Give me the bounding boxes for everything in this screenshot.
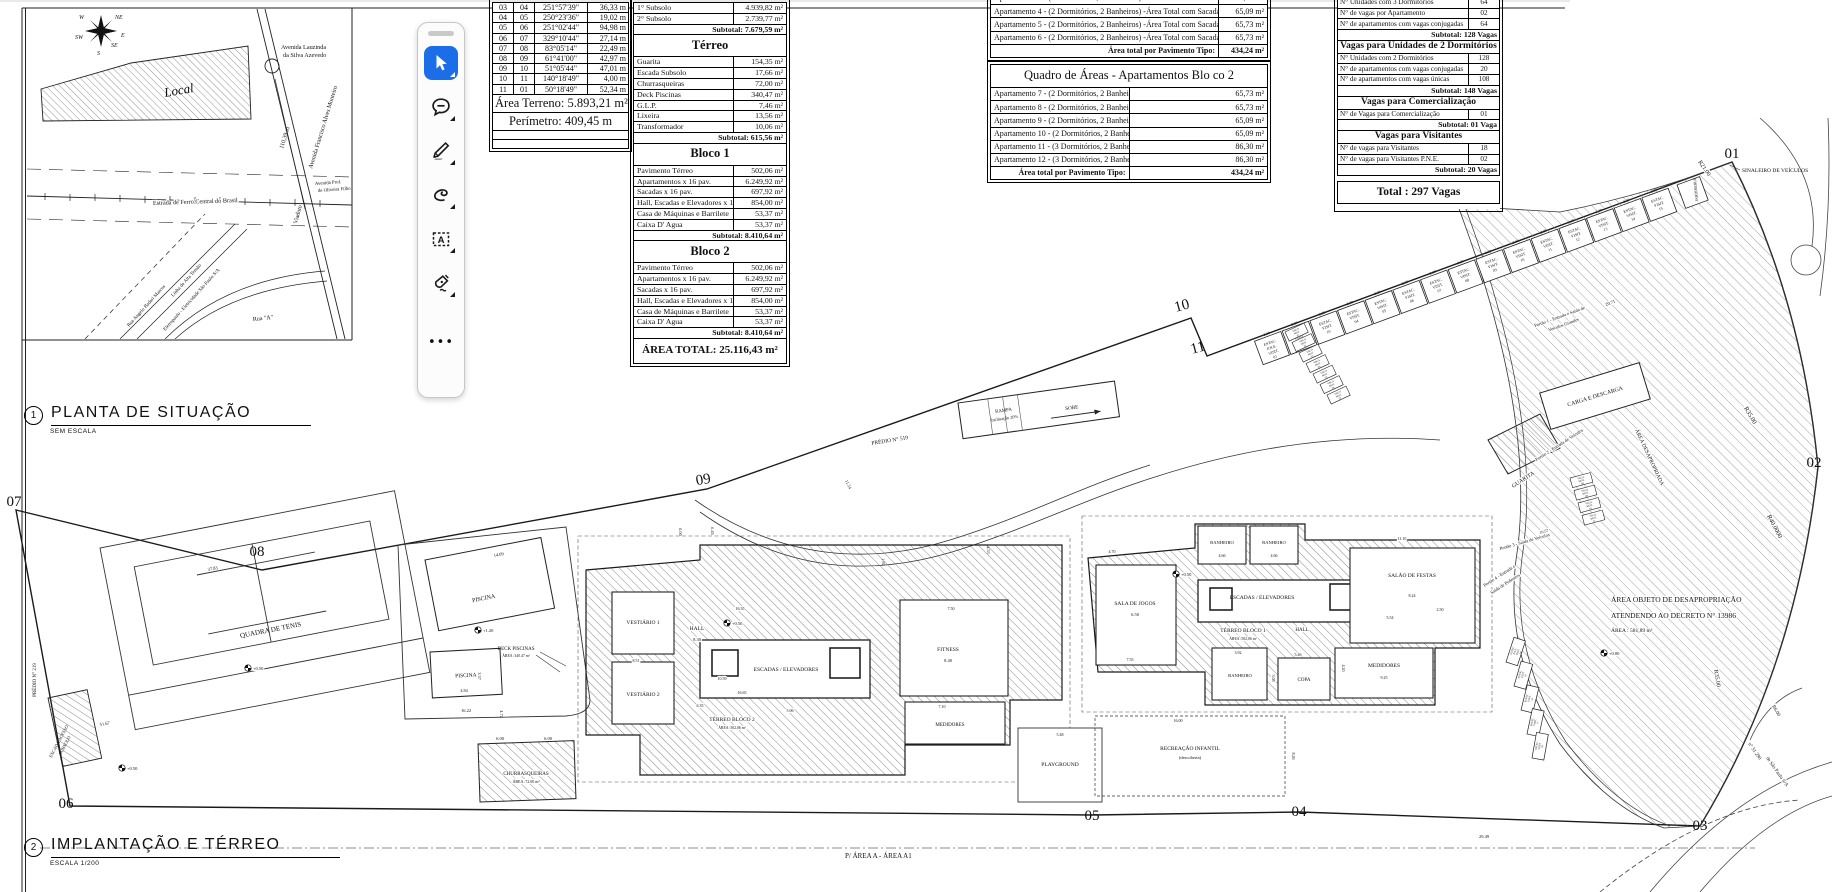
vagas-row: N° de apartamentos com vagas únicas108	[1338, 75, 1500, 86]
svg-text:BANHEIRO: BANHEIRO	[1228, 673, 1252, 678]
svg-text:6.50: 6.50	[1131, 612, 1140, 617]
quadro-row: Apartamento 4 - (2 Dormitórios, 2 Banhei…	[991, 5, 1268, 18]
areas-row: Hall, Escadas e Elevadores x 16 pav.854,…	[634, 295, 787, 306]
svg-text:VISIT.: VISIT.	[1521, 671, 1526, 679]
svg-text:VISIT.: VISIT.	[1653, 201, 1664, 208]
survey-row: 0405250°23'36"19,02 m	[493, 13, 629, 23]
svg-text:02: 02	[1303, 344, 1307, 348]
areas-row: Escada Subsolo17,66 m²	[634, 68, 787, 79]
quadro-row: Apartamento 5 - (2 Dormitórios, 2 Banhei…	[991, 18, 1268, 31]
svg-text:10: 10	[1589, 507, 1593, 511]
svg-text:R6.00: R6.00	[1770, 705, 1781, 718]
svg-text:20.71: 20.71	[1605, 299, 1616, 307]
svg-text:ESCADA ACESSO: ESCADA ACESSO	[48, 724, 70, 759]
svg-text:2.30: 2.30	[1374, 290, 1382, 296]
situation-scale-note: SEM ESCALA	[50, 428, 97, 435]
survey-row: 1011140°18'49"4,00 m	[493, 74, 629, 84]
parking-stall: ESTAC.VISIT.17	[1527, 709, 1544, 737]
level-marker: +0.00	[1601, 650, 1620, 656]
svg-text:3.08: 3.08	[1271, 675, 1276, 682]
areas-row: Subtotal: 615,56 m²	[634, 132, 787, 143]
areas-row: Pavimento Térreo502,06 m²	[634, 263, 787, 274]
svg-text:17: 17	[1536, 721, 1540, 725]
survey-row: 0506251°02'44"94,98 m	[493, 23, 629, 33]
svg-text:Veículos Grandes: Veículos Grandes	[1547, 317, 1579, 333]
svg-text:4.66: 4.66	[1219, 553, 1226, 558]
svg-text:Portão 3 - Saída de Veículos: Portão 3 - Saída de Veículos	[1499, 532, 1550, 551]
svg-text:1.92: 1.92	[881, 558, 887, 566]
vagas-row: N° de vagas para Visitantes18	[1338, 143, 1500, 154]
quadro-row: Apartamento 11 - (3 Dormitórios, 2 Banhe…	[991, 140, 1268, 153]
svg-text:5.46: 5.46	[1295, 652, 1302, 657]
svg-text:RECREAÇÃO INFANTIL: RECREAÇÃO INFANTIL	[1160, 744, 1220, 752]
road-arcs	[1600, 118, 1832, 892]
areas-row: Casa de Máquinas e Barrilete53,37 m²	[634, 208, 787, 219]
cursor-icon	[430, 52, 452, 74]
svg-text:SE: SE	[111, 43, 118, 49]
parking-stall: 2.30ESTAC.VISIT.11	[1530, 225, 1566, 262]
svg-text:16.00: 16.00	[1174, 718, 1183, 723]
svg-text:BANHEIRO: BANHEIRO	[1262, 540, 1286, 545]
vertex-number: 11	[1189, 339, 1207, 358]
svg-text:16.65: 16.65	[738, 690, 747, 695]
svg-text:R21.00: R21.00	[1696, 160, 1711, 178]
quadro-row: Apartamento 12 - (3 Dormitórios, 2 Banhe…	[991, 153, 1268, 166]
survey-row: 070883°05'14"22,49 m	[493, 43, 629, 53]
vertex-number: 09	[695, 471, 713, 489]
svg-text:CHURRASQUEIRAS: CHURRASQUEIRAS	[503, 772, 549, 777]
svg-text:05: 05	[1382, 309, 1387, 314]
vagas-row: Subtotal: 148 Vagas	[1338, 85, 1500, 96]
level-markers: +0.50+0.50+0.50+0.50+1.20+0.00	[119, 571, 1620, 771]
parking-stall: 2.30ESTAC.VISIT.09	[1474, 245, 1510, 282]
predio-219-label: PRÉDIO N° 219	[32, 663, 38, 697]
svg-text:16.22: 16.22	[461, 708, 471, 713]
svg-text:2.30: 2.30	[1318, 310, 1326, 316]
svg-text:07: 07	[1437, 288, 1442, 293]
deck-label: DECK PISCINAS	[497, 647, 534, 652]
svg-text:VISIT.: VISIT.	[1487, 262, 1498, 269]
svg-text:da Silva Azevedo: da Silva Azevedo	[283, 52, 326, 59]
medidores-b2-label: MEDIDORES	[935, 723, 964, 728]
vagas-row: N° de vagas para Visitantes P.N.E.02	[1338, 154, 1500, 165]
areas-row: G.L.P.7,46 m²	[634, 100, 787, 111]
svg-text:VISIT.: VISIT.	[1349, 313, 1360, 320]
svg-text:01: 01	[1273, 354, 1278, 359]
signature-pen-icon	[430, 272, 452, 294]
svg-text:2.30: 2.30	[1291, 321, 1299, 327]
level-marker: +0.50	[724, 620, 743, 626]
parking-stall: 2.30ESTAC.VISIT.12	[1557, 215, 1593, 252]
svg-text:Avenida Prof.: Avenida Prof.	[315, 180, 342, 187]
svg-text:R35.00: R35.00	[1712, 669, 1721, 687]
svg-text:n° 51.290: n° 51.290	[1746, 742, 1762, 761]
survey-table: 0304251°57'39"36,33 m 0405250°23'36"19,0…	[492, 2, 629, 149]
svg-text:P.N.E.: P.N.E.	[1513, 647, 1518, 654]
areas-row: Churrasqueiras72,00 m²	[634, 78, 787, 89]
vagas-row: N° Unidades com 3 Dormitórios64	[1338, 0, 1500, 8]
svg-text:ESTAC.: ESTAC.	[1518, 669, 1523, 678]
parking-stall: 2.30ESTAC.VISIT.13	[1585, 204, 1621, 241]
areas-row: Lixeira13,56 m²	[634, 111, 787, 122]
implantacao-scale-note: ESCALA 1/200	[50, 860, 99, 867]
parking-stall: ESTAC.P.N.E.VISIT.20	[1506, 637, 1526, 666]
svg-text:4.84: 4.84	[460, 688, 468, 693]
svg-text:ESTAC.: ESTAC.	[1402, 288, 1416, 296]
svg-text:+0.50: +0.50	[253, 666, 264, 671]
quadro-row: Apartamento 10 - (2 Dormitórios, 2 Banhe…	[991, 127, 1268, 140]
svg-text:8.30: 8.30	[693, 637, 702, 642]
svg-text:Saída de Pedestres: Saída de Pedestres	[1489, 572, 1521, 595]
svg-text:VISIT.: VISIT.	[1538, 742, 1542, 750]
salao-festas-label: SALÃO DE FESTAS	[1388, 571, 1436, 579]
svg-text:VISIT.: VISIT.	[1268, 349, 1279, 356]
draw-tool-button[interactable]	[424, 134, 458, 168]
parking-stall: 2.30ESTAC.VISIT.04	[1336, 297, 1372, 334]
areas-row: Subtotal: 8.410,64 m²	[634, 328, 787, 339]
svg-text:VAGA: VAGA	[1327, 380, 1335, 386]
more-icon: •••	[428, 338, 454, 348]
svg-text:07: 07	[1338, 396, 1342, 400]
area-note: P/ ÁREA A - ÁREA A1	[845, 852, 912, 860]
svg-text:7.50: 7.50	[948, 606, 955, 611]
svg-text:PLAYGROUND: PLAYGROUND	[1041, 762, 1078, 768]
svg-text:MOT.: MOT.	[1582, 491, 1589, 496]
svg-text:ESTAC.: ESTAC.	[1524, 693, 1529, 702]
svg-text:VAGA: VAGA	[1581, 488, 1589, 493]
svg-text:8.26: 8.26	[1291, 753, 1296, 760]
implantacao-title: IMPLANTAÇÃO E TÉRREO	[51, 836, 340, 858]
svg-text:Estrada de Ferro Central do Br: Estrada de Ferro Central do Brasil	[153, 197, 238, 207]
curve-parking-column: ESTAC.P.N.E.VISIT.20ESTAC.VISIT.19ESTAC.…	[1506, 637, 1548, 760]
svg-text:15: 15	[1658, 206, 1663, 211]
svg-text:14: 14	[1631, 217, 1636, 222]
parking-stall: ESTAC.VISIT.16	[1532, 732, 1548, 760]
vestiario1-label: VESTIÁRIO 1	[626, 618, 659, 626]
boundary-vertices: 0102030405060708091011	[7, 146, 1822, 834]
section-number-badge: 1	[24, 406, 43, 425]
vagas-row: N° de Vagas para Comercialização01	[1338, 109, 1500, 120]
svg-text:R40.0000: R40.0000	[1765, 514, 1783, 540]
svg-text:VISIT.: VISIT.	[1377, 303, 1388, 310]
vestiario2-label: VESTIÁRIO 2	[626, 690, 659, 698]
vertex-number: 03	[1693, 818, 1708, 834]
svg-text:16: 16	[1541, 744, 1545, 748]
situation-map: W NE SW E S SE Local Aven	[25, 9, 352, 339]
svg-text:2.30: 2.30	[1346, 300, 1354, 306]
svg-text:06: 06	[1409, 299, 1414, 304]
svg-text:2.30: 2.30	[1623, 198, 1631, 204]
svg-text:VAGA: VAGA	[1299, 338, 1307, 344]
sala-jogos-label: SALA DE JOGOS	[1114, 601, 1155, 607]
svg-text:VISIT.: VISIT.	[1527, 695, 1532, 703]
quadro-row: Apartamento 8 - (2 Dormitórios, 2 Banhei…	[991, 101, 1268, 114]
svg-text:ESTAC.: ESTAC.	[1623, 206, 1637, 214]
svg-text:VISIT.: VISIT.	[1543, 242, 1554, 249]
svg-text:+0.50: +0.50	[732, 621, 743, 626]
svg-text:VAGA: VAGA	[1589, 513, 1597, 518]
moto-stall: VAGAMOT.06	[1320, 376, 1343, 394]
svg-text:VISIT.: VISIT.	[1570, 231, 1581, 238]
areas-row: Bloco 1	[634, 143, 787, 165]
moto-parking-a: VAGAMOT.01VAGAMOT.02VAGAMOT.03VAGAMOT.04…	[1285, 323, 1350, 404]
svg-text:VISIT.: VISIT.	[1432, 282, 1443, 289]
svg-text:VISIT.: VISIT.	[1626, 211, 1637, 218]
comment-tool-button[interactable]	[424, 90, 458, 124]
submenu-corner-icon	[450, 160, 455, 165]
parking-stall: 2.30ESTAC.VISIT.03	[1308, 307, 1344, 344]
areas-table: 1° Subsolo4.939,82 m² 2° Subsolo2.739,77…	[633, 2, 787, 364]
svg-text:MOT.: MOT.	[1586, 504, 1593, 509]
svg-text:6.00: 6.00	[544, 736, 553, 741]
svg-text:(descoberta): (descoberta)	[1179, 755, 1202, 760]
areas-row: Caixa D' Agua53,37 m²	[634, 219, 787, 230]
select-tool-button[interactable]	[424, 46, 458, 80]
moto-stall: VAGAMOT.04	[1306, 355, 1329, 373]
areas-row: 1° Subsolo4.939,82 m²	[634, 3, 787, 14]
svg-text:ATENDENDO AO DECRETO N° 13986: ATENDENDO AO DECRETO N° 13986	[1611, 611, 1736, 620]
svg-text:ESTAC.: ESTAC.	[1263, 339, 1277, 347]
situation-title-block: 1 PLANTA DE SITUAÇÃO	[24, 404, 311, 426]
moto-stall: VAGAMOT.01	[1285, 323, 1308, 341]
svg-text:MOT.: MOT.	[1329, 383, 1336, 388]
areas-row: Sacadas x 16 pav.697,92 m²	[634, 187, 787, 198]
bloco2-building: VESTIÁRIO 1 VESTIÁRIO 2 HALL 8.30 ESCADA…	[578, 536, 1070, 782]
svg-text:2.30: 2.30	[1484, 249, 1492, 255]
vagas-row: Vagas para Comercialização	[1338, 96, 1500, 109]
svg-text:Portão 1 - Entrada e Saída de: Portão 1 - Entrada e Saída de	[1533, 305, 1585, 328]
signature-tool-button[interactable]	[424, 266, 458, 300]
svg-text:06: 06	[1331, 386, 1335, 390]
expropriation-labels: ÁREA OBJETO DE DESAPROPRIAÇÃO ATENDENDO …	[1611, 160, 1789, 789]
svg-text:11.10: 11.10	[1398, 536, 1407, 541]
svg-text:Viaduto: Viaduto	[293, 205, 304, 225]
lasso-tool-button[interactable]	[424, 178, 458, 212]
level-marker: +1.20	[475, 627, 494, 633]
svg-text:3.92: 3.92	[1235, 650, 1242, 655]
vertex-number: 10	[1173, 296, 1192, 315]
quadro-row: Apartamento 9 - (2 Dormitórios, 2 Banhei…	[991, 114, 1268, 127]
parking-stall: 2.30ESTAC.VISIT.02	[1281, 317, 1317, 354]
svg-text:ÁREA : 581,89 m²: ÁREA : 581,89 m²	[1611, 626, 1653, 634]
fitness-label: FITNESS	[937, 647, 959, 653]
svg-text:7.10: 7.10	[939, 704, 946, 709]
svg-text:ESTAC.: ESTAC.	[1319, 318, 1333, 326]
svg-text:03: 03	[1310, 354, 1314, 358]
svg-text:ÁREA DESAPROPRIADA: ÁREA DESAPROPRIADA	[1633, 427, 1666, 486]
svg-text:VAGA: VAGA	[1585, 501, 1593, 506]
toolbar-drag-handle[interactable]	[428, 31, 454, 36]
svg-text:16.35: 16.35	[736, 606, 745, 611]
parking-stall: 2.30ESTAC.VISIT.06	[1391, 276, 1427, 313]
svg-text:ESTAC.: ESTAC.	[1540, 236, 1554, 244]
survey-row: 080961°41'00"42,97 m	[493, 54, 629, 64]
svg-text:110,39 m: 110,39 m	[279, 126, 291, 150]
implantacao-title-block: 2 IMPLANTAÇÃO E TÉRREO	[24, 836, 340, 858]
section-number-badge: 2	[24, 838, 43, 857]
survey-row: 0304251°57'39"36,33 m	[493, 3, 629, 13]
svg-text:6.00: 6.00	[678, 528, 683, 536]
svg-text:10.57: 10.57	[1539, 528, 1549, 535]
vagas-row: N° de vagas por Apartamento02	[1338, 8, 1500, 19]
areas-row: Caixa D' Agua53,37 m²	[634, 317, 787, 328]
vagas-row: Total : 297 Vagas	[1338, 181, 1500, 203]
svg-text:2.30: 2.30	[1567, 218, 1575, 224]
vagas-row: N° de apartamentos com vagas conjugadas6…	[1338, 19, 1500, 30]
svg-text:Inclinação 20%: Inclinação 20%	[991, 414, 1019, 423]
svg-text:ÁREA OBJETO DE DESAPROPRIAÇÃO: ÁREA OBJETO DE DESAPROPRIAÇÃO	[1611, 594, 1742, 604]
vertex-number: 02	[1807, 455, 1822, 471]
submenu-corner-icon	[450, 72, 455, 77]
sinaleiro-label: SINALEIRO DE VEÍCULOS	[1742, 166, 1808, 174]
svg-text:Linha de Alta Tensão: Linha de Alta Tensão	[171, 263, 203, 298]
level-marker: +0.50	[119, 765, 138, 771]
quadro-row: Apartamento 6 - (2 Dormitórios, 2 Banhei…	[991, 31, 1268, 44]
submenu-corner-icon	[450, 204, 455, 209]
jardineira-strip: JARDINEIRA	[1677, 176, 1708, 209]
svg-text:Eletropaulo - Eletricidade São: Eletropaulo - Eletricidade São Paulo S/A	[163, 268, 222, 333]
parking-stall: 2.30ESTAC.P.N.E.VISIT.01	[1253, 327, 1289, 364]
svg-text:51.67: 51.67	[99, 720, 111, 727]
svg-text:ÁREA :72.00 m²: ÁREA :72.00 m²	[512, 779, 540, 784]
quadro-areas-bloco2-table: Quadro de Áreas - Apartamentos Blo co 2 …	[990, 64, 1268, 180]
svg-text:8.40: 8.40	[944, 658, 953, 663]
predio-519-label: PRÉDIO N° 519	[871, 433, 909, 447]
svg-text:VISIT.: VISIT.	[1321, 323, 1332, 330]
quadro-row: Apartamento 7 - (2 Dormitórios, 2 Banhei…	[991, 88, 1268, 101]
escadas-b1-label: ESCADAS / ELEVADORES	[1230, 595, 1295, 601]
survey-row: 110150°18'49"52,34 m	[493, 84, 629, 94]
svg-text:VISIT.: VISIT.	[1598, 221, 1609, 228]
areas-row: Deck Piscinas340,47 m²	[634, 89, 787, 100]
moto-stall: VAGAMOT.07	[1327, 386, 1350, 404]
svg-text:MOT.: MOT.	[1590, 516, 1597, 521]
guarita-label: GUARITA	[1511, 470, 1536, 489]
svg-text:20: 20	[1519, 651, 1523, 655]
svg-text:SOBE: SOBE	[1065, 404, 1079, 412]
parking-stall: ESTAC.VISIT.18	[1521, 685, 1539, 713]
svg-text:HALL: HALL	[1295, 628, 1308, 633]
svg-text:VAGA: VAGA	[1577, 476, 1585, 481]
svg-text:2.30: 2.30	[1512, 239, 1520, 245]
level-marker: +0.50	[245, 665, 264, 671]
svg-text:ESTAC.: ESTAC.	[1512, 247, 1526, 255]
areas-row: Transformador10,06 m²	[634, 122, 787, 133]
moto-stall: VAGAMOT.05	[1313, 365, 1336, 383]
svg-text:9.25: 9.25	[1381, 675, 1388, 680]
svg-text:RAMPA: RAMPA	[995, 408, 1013, 415]
areas-row: Casa de Máquinas e Barrilete53,37 m²	[634, 306, 787, 317]
area-terreno-row: Área Terreno: 5.893,21 m²	[493, 94, 629, 112]
parking-stall: 2.30ESTAC.VISIT.14	[1613, 194, 1649, 231]
banheiro-label: BANHEIRO	[1210, 540, 1234, 545]
svg-text:ESTAC.: ESTAC.	[1485, 257, 1499, 265]
svg-text:5.06: 5.06	[787, 708, 794, 713]
expropriation-area	[1458, 162, 1818, 828]
svg-text:ESTAC.: ESTAC.	[1535, 741, 1540, 750]
vertex-number: 04	[1292, 804, 1308, 820]
areas-row: Subtotal: 8.410,64 m²	[634, 230, 787, 241]
svg-text:MOT.: MOT.	[1308, 351, 1315, 356]
vertex-number: 07	[7, 494, 23, 510]
svg-text:4.72: 4.72	[499, 710, 504, 717]
svg-text:HALL: HALL	[690, 626, 705, 632]
svg-text:2.30: 2.30	[1595, 208, 1603, 214]
vagas-row: Subtotal: 128 Vagas	[1338, 30, 1500, 41]
more-tools-button[interactable]: •••	[424, 326, 458, 360]
svg-text:08: 08	[1581, 482, 1585, 486]
quadro-row: Área total por Pavimento Tipo:434,24 m²	[991, 167, 1268, 180]
areas-row: Sacadas x 16 pav.697,92 m²	[634, 284, 787, 295]
areas-row: Pavimento Térreo502,06 m²	[634, 165, 787, 176]
svg-text:02: 02	[1299, 340, 1304, 345]
parking-stall: 2.30ESTAC.VISIT.07	[1419, 266, 1455, 303]
survey-row: 091051°05'44"47,01 m	[493, 64, 629, 74]
text-box-tool-button[interactable]: A	[424, 222, 458, 256]
svg-text:R35.00: R35.00	[1742, 406, 1758, 426]
pool-deck: PISCINA PISCINA 14.09 4.84 3.37 16.22 4.…	[398, 527, 590, 719]
subsolo-stair: ESCADA ACESSO SUBSOLO 51.67 PRÉDIO N° 21…	[32, 663, 111, 767]
svg-text:E: E	[120, 33, 125, 39]
quadro-row: Área total por Pavimento Tipo:434,24 m²	[991, 44, 1268, 57]
svg-text:VAGA: VAGA	[1334, 390, 1342, 396]
svg-text:11.54: 11.54	[844, 479, 853, 491]
svg-text:P.N.E.: P.N.E.	[1266, 344, 1277, 351]
moto-stall: VAGAMOT.02	[1292, 334, 1315, 352]
svg-text:03: 03	[1326, 329, 1331, 334]
parking-stall: 2.30ESTAC.VISIT.08	[1447, 256, 1483, 293]
perimetro-row: Perímetro: 409,45 m	[493, 112, 629, 130]
level-marker: +0.50	[1173, 571, 1192, 577]
vertex-number: 06	[59, 796, 75, 812]
svg-text:11: 11	[1593, 519, 1597, 523]
svg-text:2.30: 2.30	[1457, 259, 1465, 265]
areas-row: Apartamentos x 16 pav.6.249,92 m²	[634, 274, 787, 285]
text-box-icon: A	[430, 228, 452, 250]
svg-text:2.50: 2.50	[1437, 607, 1444, 612]
driveway-curves	[695, 438, 1440, 566]
cad-viewer-page: { "situation_map": { "section_number": "…	[0, 0, 1832, 892]
svg-text:04: 04	[1317, 365, 1321, 369]
svg-text:2.30: 2.30	[1429, 270, 1437, 276]
svg-text:Portão 4 - Entrada e: Portão 4 - Entrada e	[1482, 564, 1516, 588]
svg-text:MOT.: MOT.	[1336, 393, 1343, 398]
svg-text:09: 09	[1585, 494, 1589, 498]
svg-text:VISIT.: VISIT.	[1516, 648, 1521, 656]
property-boundary	[16, 162, 1818, 826]
svg-text:08: 08	[1465, 278, 1470, 283]
moto-stall: VAGAMOT.03	[1299, 344, 1322, 362]
svg-text:5.54: 5.54	[1387, 615, 1394, 620]
comment-icon	[430, 96, 452, 118]
areas-row: Bloco 2	[634, 241, 787, 263]
svg-text:CARGA E DESCARGA: CARGA E DESCARGA	[1567, 385, 1625, 408]
tennis-label: QUADRA DE TENIS	[239, 620, 302, 640]
compass-rose: W NE SW E S SE	[75, 15, 125, 57]
vertex-number: 08	[250, 544, 265, 560]
svg-text:ESTAC.: ESTAC.	[1429, 277, 1443, 285]
parking-stall: 2.30ESTAC.VISIT.05	[1364, 286, 1400, 323]
svg-text:ESTAC.: ESTAC.	[1457, 267, 1471, 275]
vagas-row: Vagas para Visitantes	[1338, 130, 1500, 143]
svg-text:S: S	[97, 51, 100, 57]
svg-text:ÁREA :502,06 m²: ÁREA :502,06 m²	[1229, 636, 1257, 642]
areas-row: 2° Subsolo2.739,77 m²	[634, 13, 787, 24]
svg-text:NE: NE	[114, 15, 123, 21]
bloco1-building: SALA DE JOGOS 6.50 BANHEIRO BANHEIRO 4.6…	[1082, 516, 1492, 712]
vagas-row: Subtotal: 01 Vaga	[1338, 120, 1500, 131]
areas-row: Subtotal: 7.679,59 m²	[634, 24, 787, 35]
